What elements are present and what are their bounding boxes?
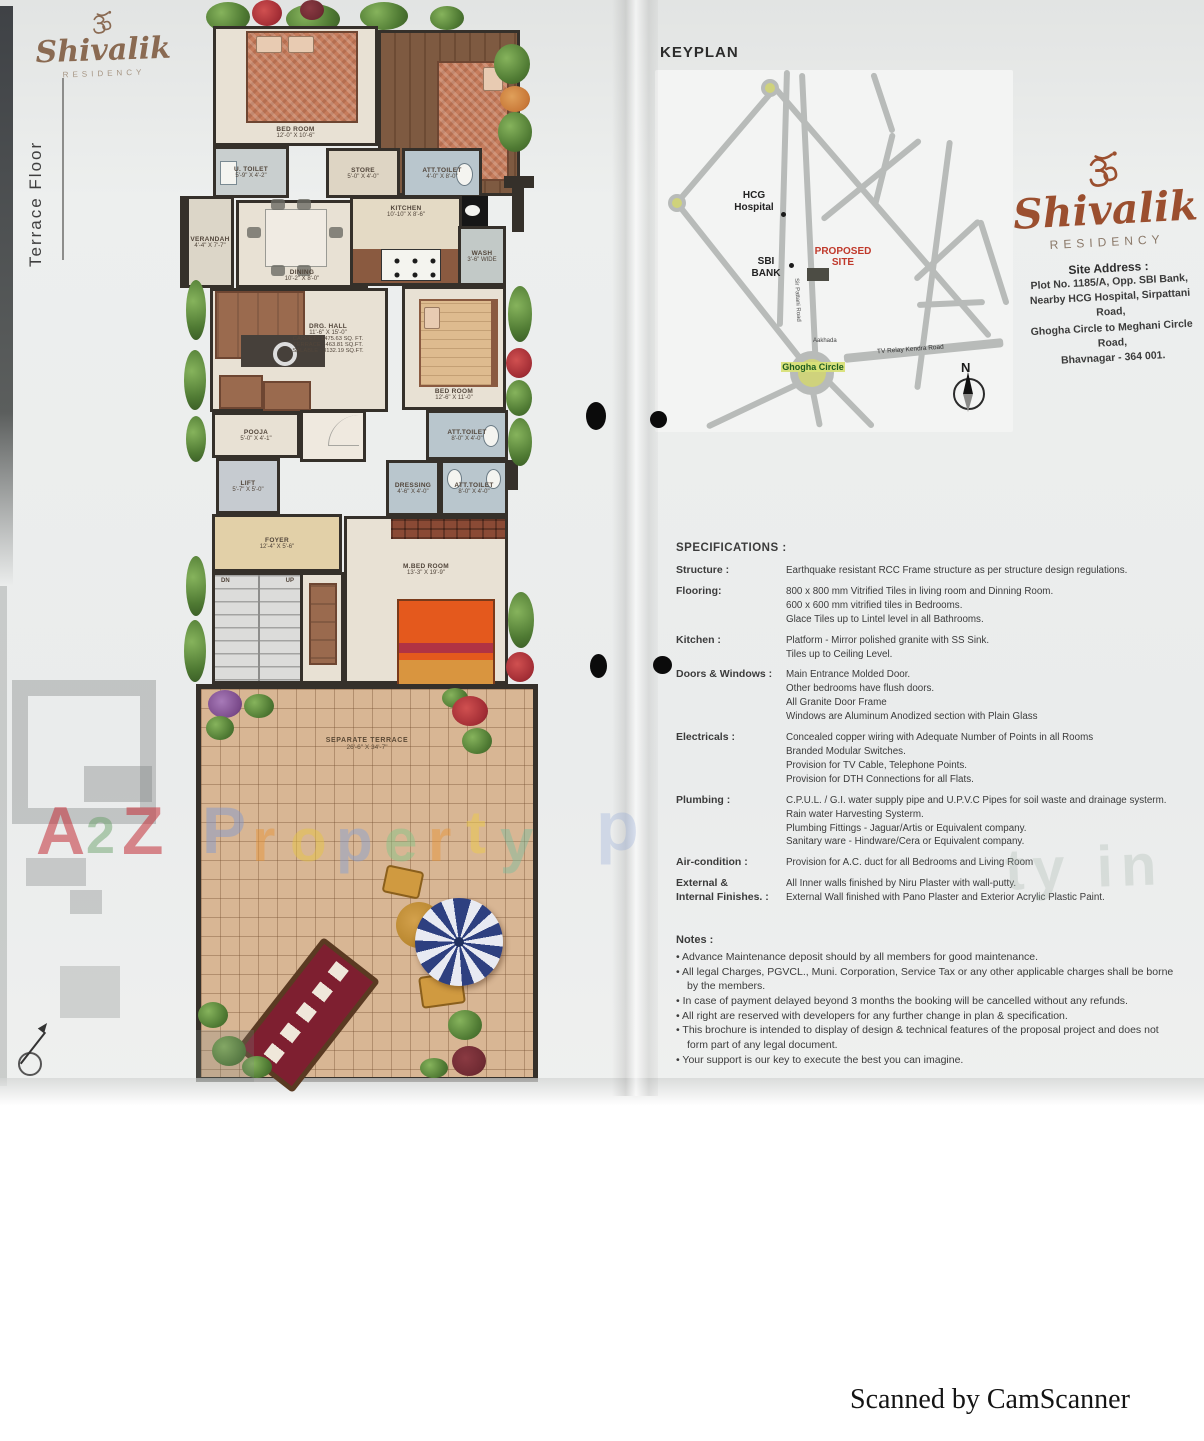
stairs-down-label: DN xyxy=(221,578,230,584)
plant xyxy=(508,418,532,466)
room-bedroom-top: BED ROOM 12'-0" X 10'-6" xyxy=(213,26,378,146)
room-drawing-hall: DRG. HALL 11'-6" X 15'-0" CARPET : 1475.… xyxy=(210,288,388,412)
room-store: STORE 5'-0" X 4'-0" xyxy=(326,148,400,198)
pillow-icon xyxy=(424,307,440,329)
spec-label: Structure : xyxy=(676,564,786,578)
door-arc-icon xyxy=(328,415,359,446)
wall-segment xyxy=(512,188,524,232)
watermark-letter: p xyxy=(336,806,373,875)
road-line xyxy=(706,380,802,429)
spec-row: Kitchen : Platform - Mirror polished gra… xyxy=(676,634,1198,662)
room-label: KITCHEN xyxy=(391,205,422,212)
brand-logo-left: Shivalik RESIDENCY xyxy=(17,7,189,81)
punch-hole xyxy=(653,656,672,674)
room-dims: 12'-0" X 10'-6" xyxy=(277,133,315,139)
notes-list: Advance Maintenance deposit should by al… xyxy=(676,950,1181,1068)
chair-icon xyxy=(247,227,261,238)
spec-label: Doors & Windows : xyxy=(676,668,786,724)
book-edge-shadow xyxy=(0,6,13,586)
room-passage xyxy=(300,410,366,462)
aakhada-label: Aakhada xyxy=(813,338,837,344)
watermark-square xyxy=(60,966,120,1018)
spec-label: Air-condition : xyxy=(676,856,786,870)
chair-icon xyxy=(329,227,343,238)
plant xyxy=(500,86,530,112)
ghogha-circle-icon xyxy=(790,351,834,395)
room-label: SEPARATE TERRACE xyxy=(326,737,408,744)
plant xyxy=(198,1002,228,1028)
road-line xyxy=(820,137,922,222)
spec-lines: Concealed copper wiring with Adequate Nu… xyxy=(786,731,1198,787)
room-label: ATT.TOILET xyxy=(454,482,493,489)
spec-label: Plumbing : xyxy=(676,794,786,850)
watermark-square xyxy=(70,890,102,914)
note-item: In case of payment delayed beyond 3 mont… xyxy=(676,994,1181,1009)
plant xyxy=(300,0,324,20)
note-item: Advance Maintenance deposit should by al… xyxy=(676,950,1181,965)
watermark-letter: r xyxy=(252,806,275,875)
room-dims: 5'-7" X 5'-0" xyxy=(232,487,263,493)
plant xyxy=(420,1058,448,1078)
room-label: DINING xyxy=(290,269,315,276)
room-dims: 4'-0" X 8'-0" xyxy=(426,174,457,180)
room-master-bedroom: M.BED ROOM 13'-3" X 19'-9" xyxy=(344,516,508,684)
notes-section: Notes : Advance Maintenance deposit shou… xyxy=(676,934,1181,1068)
keyplan-map: Ghogha Circle HCG Hospital SBI BANK PROP… xyxy=(655,70,1013,432)
proposed-site-marker xyxy=(807,268,829,281)
room-dims: 5'-0" X 4'-1" xyxy=(240,436,271,442)
punch-hole xyxy=(586,402,606,430)
stove-icon xyxy=(381,249,441,281)
sbi-bank-label: SBI BANK xyxy=(745,256,787,279)
sir-pattani-road-label: Sir Pattani Road xyxy=(793,278,801,322)
plant xyxy=(186,556,206,616)
bed-icon xyxy=(397,599,495,687)
road-line xyxy=(977,219,1010,306)
room-dims: 26'-6" X 34'-7" xyxy=(346,744,387,751)
plant xyxy=(508,592,534,648)
pillow-icon xyxy=(256,36,282,53)
note-item: All right are reserved with developers f… xyxy=(676,1009,1181,1024)
spec-label: Kitchen : xyxy=(676,634,786,662)
chair-icon xyxy=(297,199,311,210)
road-line xyxy=(870,72,896,134)
bed-icon xyxy=(419,299,498,387)
note-item: All legal Charges, PGVCL., Muni. Corpora… xyxy=(676,965,1181,994)
room-dims: 13'-3" X 19'-9" xyxy=(407,570,445,576)
road-line xyxy=(913,218,982,282)
brand-name: Shivalik xyxy=(18,33,189,69)
junction-node-icon xyxy=(668,194,686,212)
room-label: ATT.TOILET xyxy=(422,167,461,174)
hall-label-block: DRG. HALL 11'-6" X 15'-0" CARPET : 1475.… xyxy=(269,323,387,354)
plant xyxy=(186,416,206,462)
room-att-toilet-top: ATT.TOILET 4'-0" X 8'-0" xyxy=(402,148,482,198)
spec-row: Doors & Windows : Main Entrance Molded D… xyxy=(676,668,1198,724)
room-label: STORE xyxy=(351,167,375,174)
page-bottom-fade xyxy=(0,1078,1204,1106)
room-bedroom-right: BED ROOM 12'-6" X 11'-0" xyxy=(402,286,506,410)
room-label: U. TOILET xyxy=(234,166,268,173)
watermark-letter: e xyxy=(384,806,417,875)
punch-hole xyxy=(650,411,667,428)
room-label: ATT.TOILET xyxy=(447,429,486,436)
plant xyxy=(208,690,242,718)
road-line xyxy=(872,132,896,205)
dining-table-icon xyxy=(265,209,327,267)
plant xyxy=(206,716,234,740)
page-fold xyxy=(612,0,658,1096)
room-dims: 5'-0" X 4'-0" xyxy=(347,174,378,180)
room-dims: 10'-10" X 8'-6" xyxy=(387,212,425,218)
room-label: FOYER xyxy=(265,537,289,544)
room-wash: WASH 3'-6" WIDE xyxy=(458,226,506,286)
room-dims: 12'-4" X 5'-6" xyxy=(260,544,295,550)
pillow-icon xyxy=(288,36,314,53)
room-lift: LIFT 5'-7" X 5'-0" xyxy=(216,458,280,514)
watermark-letter: r xyxy=(428,806,451,875)
plant xyxy=(506,348,532,378)
road-line xyxy=(675,86,778,205)
sofa-chair-icon xyxy=(219,375,263,409)
compass-icon xyxy=(14,1022,58,1078)
spec-label: Flooring: xyxy=(676,585,786,627)
room-dims: 10'-2" X 8'-0" xyxy=(285,276,320,282)
watermark-letter: y xyxy=(500,806,533,875)
spec-lines: Earthquake resistant RCC Frame structure… xyxy=(786,564,1198,578)
spec-row: Flooring: 800 x 800 mm Vitrified Tiles i… xyxy=(676,585,1198,627)
spec-row: Structure : Earthquake resistant RCC Fra… xyxy=(676,564,1198,578)
stairs-up-label: UP xyxy=(286,578,294,584)
hcg-hospital-label: HCG Hospital xyxy=(723,190,785,213)
room-label: WASH xyxy=(472,250,493,257)
sink-icon xyxy=(458,196,488,226)
watermark-z: Z xyxy=(122,792,164,870)
plant xyxy=(452,1046,486,1076)
punch-hole xyxy=(590,654,607,678)
bed-icon xyxy=(246,31,358,123)
site-address-lines: Plot No. 1185/A, Opp. SBI Bank,Nearby HC… xyxy=(1015,270,1204,371)
room-label: DRESSING xyxy=(395,482,431,489)
spec-label: External & Internal Finishes. : xyxy=(676,877,786,905)
plant xyxy=(186,280,206,340)
room-dining: DINING 10'-2" X 8'-0" xyxy=(236,200,368,288)
sofa-chair-icon xyxy=(263,381,311,411)
watermark-letter: P xyxy=(202,792,246,868)
scanned-brochure-page: Shivalik RESIDENCY Terrace Floor BED ROO… xyxy=(0,0,1204,1441)
plant xyxy=(498,112,532,152)
room-att-toilet-mid: ATT.TOILET 8'-0" X 4'-0" xyxy=(426,410,508,460)
plant xyxy=(506,652,534,682)
room-label: POOJA xyxy=(244,429,268,436)
spec-label: Electricals : xyxy=(676,731,786,787)
room-dims: 12'-6" X 11'-0" xyxy=(435,395,472,401)
floor-title: Terrace Floor xyxy=(26,106,52,302)
wall-segment xyxy=(504,176,534,188)
watermark-letter: t xyxy=(466,798,486,867)
room-label: BED ROOM xyxy=(276,126,314,133)
room-label: BED ROOM xyxy=(435,388,473,395)
room-label: DRG. HALL xyxy=(269,323,387,330)
chair-icon xyxy=(271,265,285,276)
hallway xyxy=(303,572,344,684)
room-foyer: FOYER 12'-4" X 5'-6" xyxy=(212,514,342,572)
sbi-dot-icon xyxy=(789,263,794,268)
chair-icon xyxy=(271,199,285,210)
room-dims: 5'-9" X 4'-2" xyxy=(235,173,266,179)
plant xyxy=(462,728,492,754)
spec-row: Electricals : Concealed copper wiring wi… xyxy=(676,731,1198,787)
note-item: This brochure is intended to display of … xyxy=(676,1023,1181,1052)
watermark-square xyxy=(196,1030,254,1082)
notes-title: Notes : xyxy=(676,934,1181,946)
bench-icon xyxy=(309,583,337,665)
compass-needle-icon xyxy=(963,394,973,412)
camscanner-footer: Scanned by CamScanner xyxy=(850,1384,1130,1416)
plant xyxy=(494,44,530,84)
watermark-letter: o xyxy=(290,806,327,875)
plant xyxy=(452,696,488,726)
spec-lines: Platform - Mirror polished granite with … xyxy=(786,634,1198,662)
keyplan-title: KEYPLAN xyxy=(660,44,739,61)
spec-lines: Main Entrance Molded Door.Other bedrooms… xyxy=(786,668,1198,724)
watermark-faint-right: ty in xyxy=(1004,831,1165,904)
room-label: M.BED ROOM xyxy=(403,563,449,570)
spec-lines: 800 x 800 mm Vitrified Tiles in living r… xyxy=(786,585,1198,627)
note-item: Your support is our key to execute the b… xyxy=(676,1053,1181,1068)
road-line xyxy=(799,73,820,393)
brand-logo-right: Shivalik RESIDENCY Site Address : Plot N… xyxy=(1008,145,1204,371)
plant xyxy=(506,380,532,416)
proposed-site-label: PROPOSED SITE xyxy=(803,246,883,268)
watermark-letter-faint: p xyxy=(596,786,639,866)
room-dims: 8'-0" X 4'-0" xyxy=(451,436,482,442)
room-dims: 8'-0" X 4'-0" xyxy=(458,489,489,495)
room-dims: 4'-4" X 7'-7" xyxy=(194,243,225,249)
plant xyxy=(184,620,206,682)
brand-name: Shivalik xyxy=(1011,185,1201,236)
watermark-a: A xyxy=(36,792,85,870)
salable-area: SALABLE : 3132.19 SQ.FT. xyxy=(269,348,387,354)
book-edge-shadow-lower xyxy=(0,586,7,1086)
specifications-title: SPECIFICATIONS : xyxy=(676,542,1198,554)
room-att-toilet-low: ATT.TOILET 8'-0" X 4'-0" xyxy=(440,460,508,516)
room-dressing: DRESSING 4'-6" X 4'-0" xyxy=(386,460,440,516)
ghogha-circle-label: Ghogha Circle xyxy=(773,362,853,372)
room-label: LIFT xyxy=(241,480,256,487)
watermark-2: 2 xyxy=(86,806,115,866)
hcg-dot-icon xyxy=(781,212,786,217)
room-dims: 3'-6" WIDE xyxy=(467,257,496,263)
compass-needle-icon xyxy=(963,372,973,394)
plant xyxy=(184,350,206,410)
room-pooja: POOJA 5'-0" X 4'-1" xyxy=(212,412,300,458)
room-label: VERANDAH xyxy=(190,236,229,243)
wardrobe-icon xyxy=(391,519,505,539)
room-kitchen: KITCHEN 10'-10" X 8'-6" xyxy=(350,196,462,286)
room-dims: 4'-6" X 4'-0" xyxy=(397,489,428,495)
plant xyxy=(448,1010,482,1040)
plant xyxy=(508,286,532,342)
wall-segment xyxy=(180,196,188,288)
road-line xyxy=(825,378,875,429)
staircase: DN UP xyxy=(212,572,303,684)
plant xyxy=(252,0,282,26)
room-verandah: VERANDAH 4'-4" X 7'-7" xyxy=(186,196,234,288)
plant xyxy=(430,6,464,30)
umbrella-icon xyxy=(415,898,503,986)
room-u-toilet: U. TOILET 5'-9" X 4'-2" xyxy=(213,146,289,198)
junction-node-icon xyxy=(761,79,779,97)
divider-line xyxy=(62,78,64,260)
plant xyxy=(244,694,274,718)
